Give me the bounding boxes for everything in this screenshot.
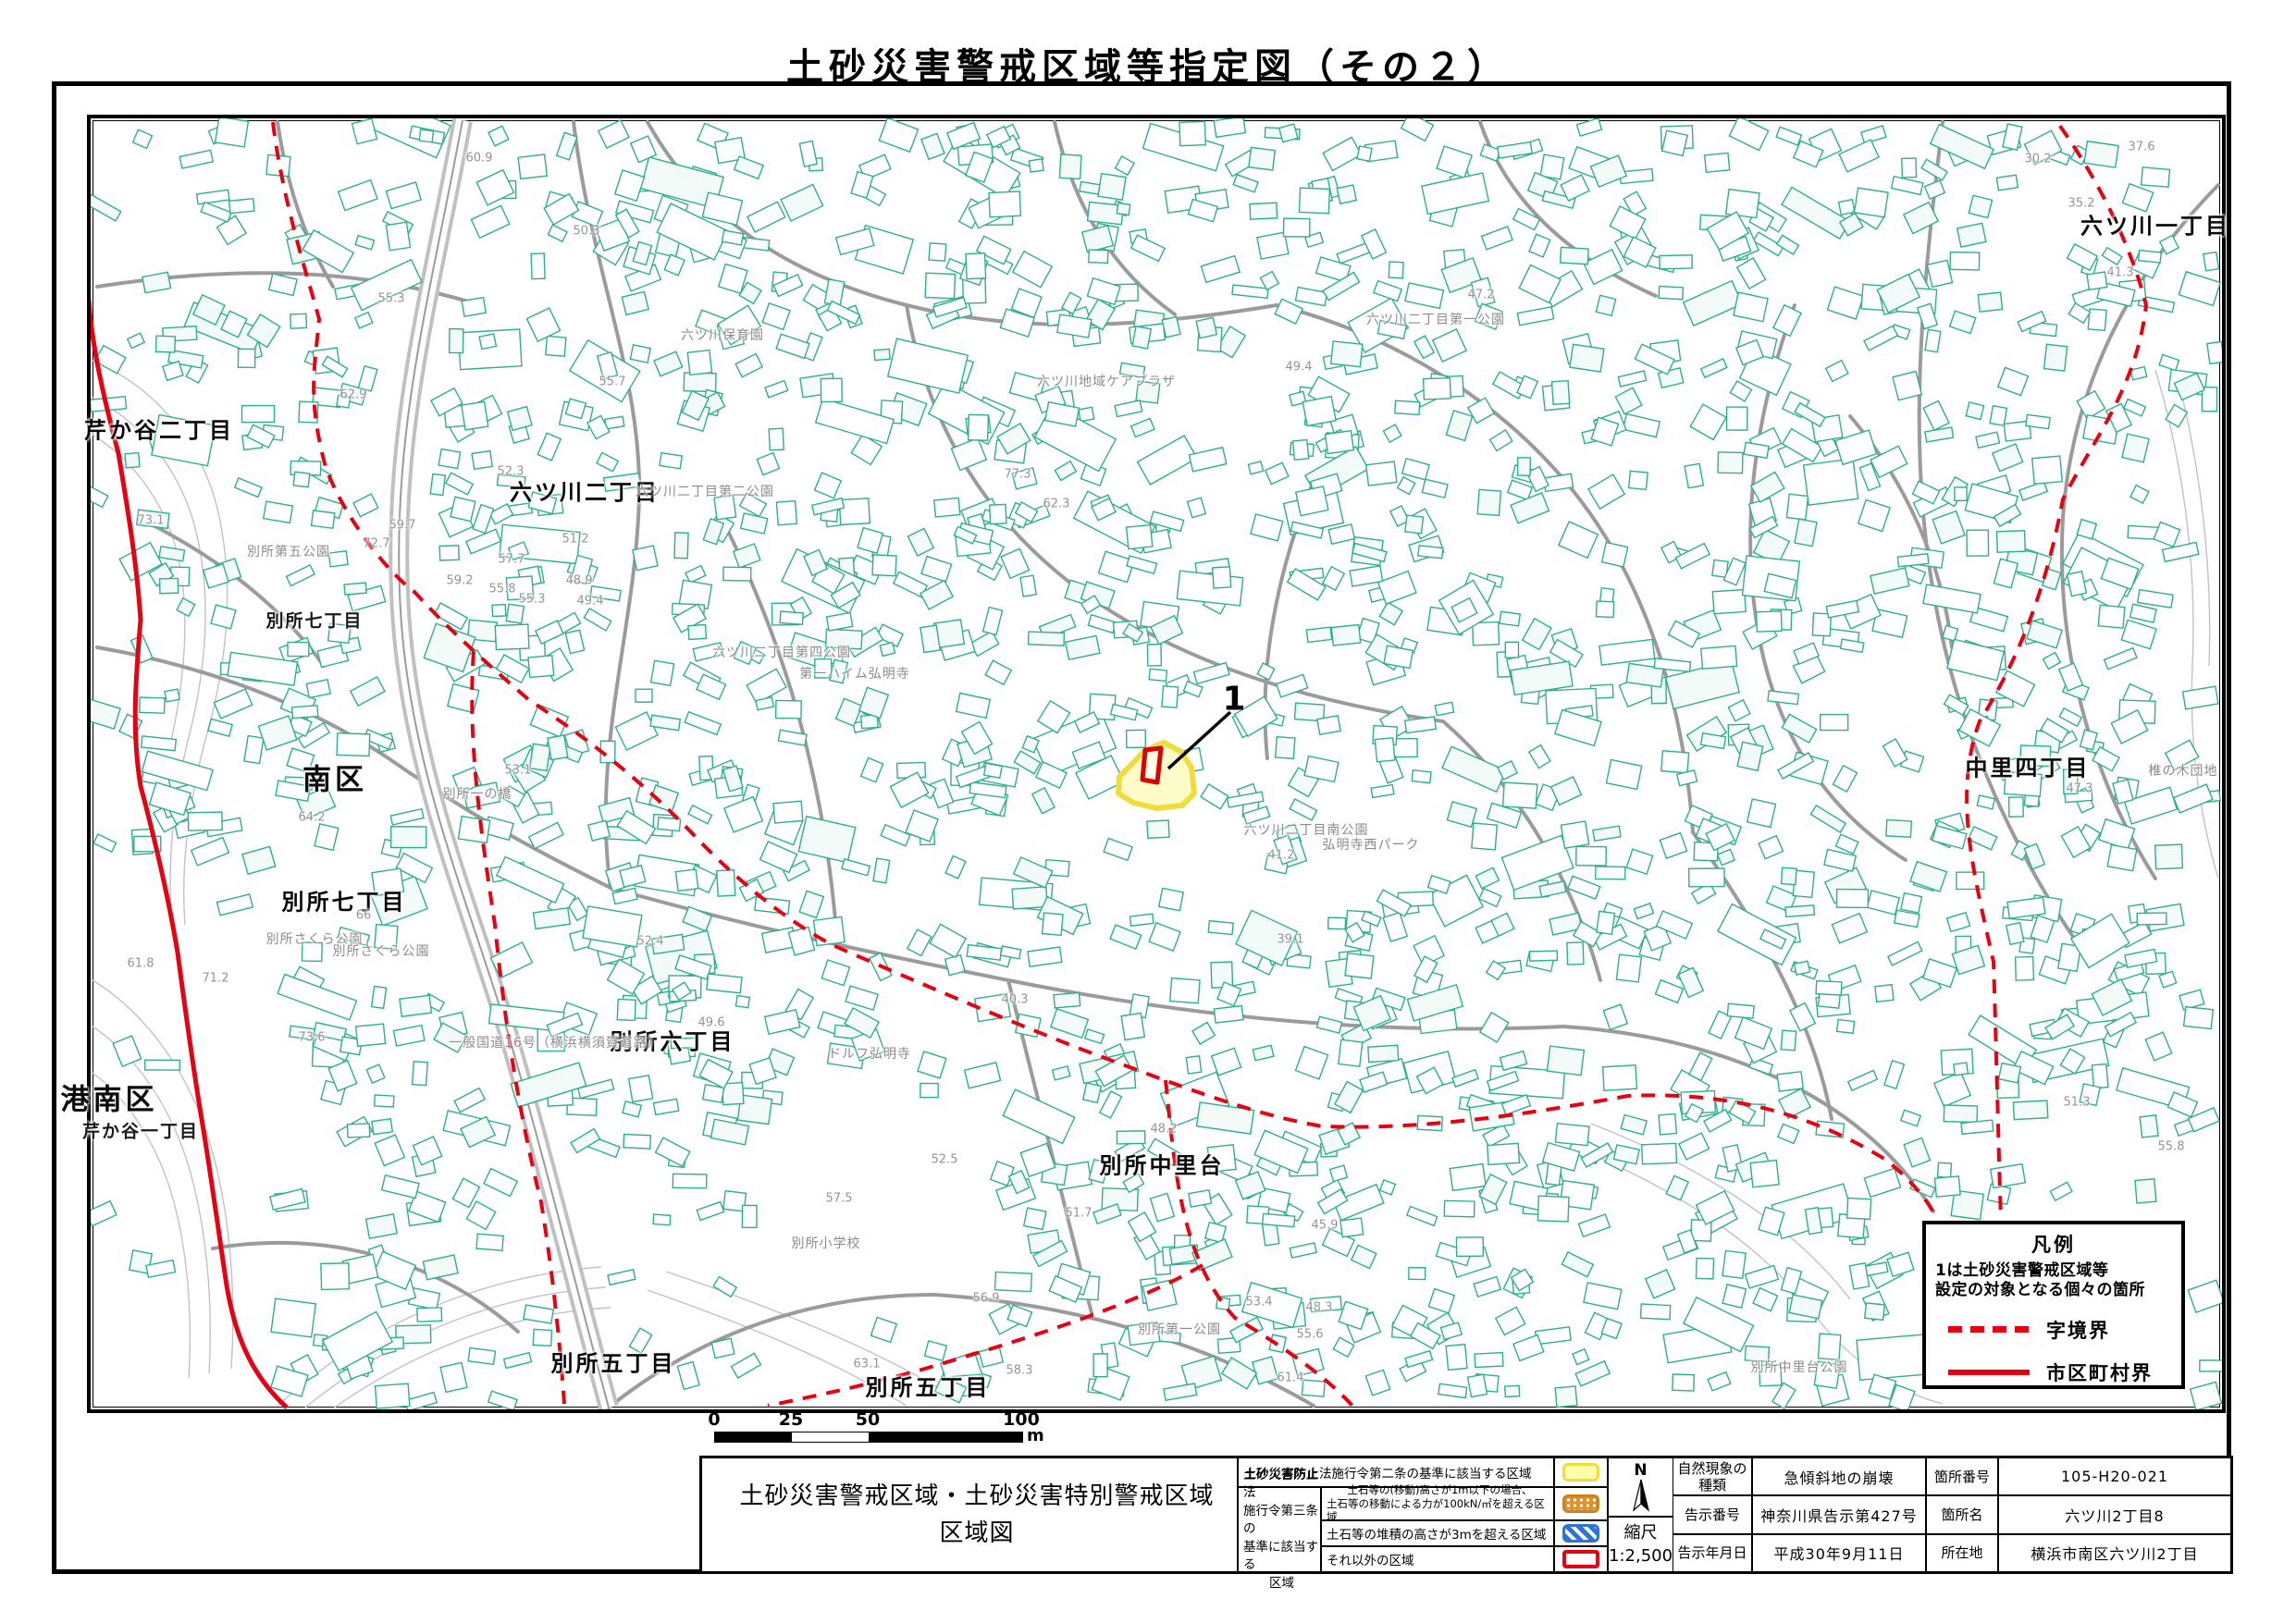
field-value: 神奈川県告示第427号: [1753, 1496, 1925, 1532]
scale-segment-black: [715, 1432, 792, 1442]
criteria-move-height-line1: 土石等の(移動)高さが1m以下の場合、: [1348, 1483, 1533, 1497]
zone-orange-dots-swatch: [1562, 1494, 1599, 1513]
field-value: 急傾斜地の崩壊: [1753, 1458, 1925, 1494]
zone-red-outline-swatch: [1562, 1550, 1599, 1568]
aza-boundary-label: 字境界: [2046, 1316, 2110, 1344]
scale-bar-unit: m: [1027, 1426, 1044, 1445]
criteria-article3-label-line: 基準に該当する: [1243, 1539, 1320, 1575]
criteria-article3-label-line: 施行令第三条の: [1243, 1503, 1320, 1539]
map-sheet-title-cell: 土砂災害警戒区域・土砂災害特別警戒区域 区域図: [702, 1458, 1237, 1571]
criteria-article3-label-line: 区域: [1269, 1575, 1294, 1593]
legend-note-line1: 1は土砂災害警戒区域等: [1935, 1261, 2172, 1281]
base-map: [91, 118, 2222, 1409]
field-label: 告示番号: [1673, 1496, 1751, 1532]
compass-scale-group: N 縮尺 1:2,500: [1609, 1458, 1672, 1571]
scale-bar: 02550100 m: [712, 1409, 1045, 1452]
legend-box: 凡例 1は土砂災害警戒区域等 設定の対象となる個々の箇所 字境界 市区町村界: [1922, 1221, 2185, 1389]
field-label: 所在地: [1927, 1535, 1997, 1571]
zone-yellow-swatch-cell: [1555, 1458, 1607, 1486]
map-sheet: 土砂災害警戒区域等指定図（その２）: [0, 0, 2296, 1623]
map-area: [87, 115, 2226, 1413]
scale-segment-white: [792, 1432, 869, 1442]
criteria-article3-group: 土砂災害防止法施行令第三条の基準に該当する区域 土石等の(移動)高さが1m以下の…: [1239, 1488, 1553, 1571]
legend-row-municipal: 市区町村界: [1935, 1359, 2172, 1386]
municipal-boundary-label: 市区町村界: [2046, 1359, 2153, 1386]
field-label: 箇所名: [1927, 1496, 1997, 1532]
zone-red-outline-swatch-cell: [1555, 1547, 1607, 1571]
criteria-article3-label-line: 土砂災害防止法: [1243, 1467, 1320, 1503]
designation-fields-group: 自然現象の種類急傾斜地の崩壊箇所番号105-H20-021告示番号神奈川県告示第…: [1673, 1458, 2230, 1571]
zone-blue-stripes-swatch: [1562, 1524, 1599, 1543]
map-sheet-title-line1: 土砂災害警戒区域・土砂災害特別警戒区域: [739, 1478, 1214, 1515]
legend-note-line2: 設定の対象となる個々の箇所: [1935, 1281, 2172, 1300]
scale-segment-black: [869, 1432, 1022, 1442]
zone-blue-stripes-swatch-cell: [1555, 1521, 1607, 1545]
zone-yellow-swatch: [1562, 1463, 1599, 1482]
field-label: 告示年月日: [1673, 1535, 1751, 1571]
criteria-other-cell: それ以外の区域: [1322, 1547, 1553, 1571]
legend-heading: 凡例: [1935, 1230, 2172, 1258]
field-label: 箇所番号: [1927, 1458, 1997, 1494]
scale-tick-label: 50: [856, 1409, 880, 1430]
zone-orange-dots-swatch-cell: [1555, 1488, 1607, 1519]
north-arrow-icon: [1631, 1479, 1651, 1512]
info-table: 土砂災害警戒区域・土砂災害特別警戒区域 区域図 土砂災害防止法施行令第二条の基準…: [699, 1456, 2233, 1574]
special-warning-zone-red: [1142, 748, 1161, 782]
dashed-red-line-icon: [1948, 1326, 2030, 1333]
compass-n-label: N: [1634, 1463, 1647, 1479]
field-value: 平成30年9月11日: [1753, 1535, 1925, 1571]
scale-value: 1:2,500: [1609, 1544, 1673, 1568]
criteria-move-height-cell: 土石等の(移動)高さが1m以下の場合、 土石等の移動による力が100kN/㎡を超…: [1322, 1488, 1553, 1519]
map-sheet-title-line2: 区域図: [939, 1515, 1014, 1552]
field-value: 横浜市南区六ツ川2丁目: [1999, 1535, 2230, 1571]
scale-tick-label: 0: [708, 1409, 720, 1430]
field-value: 六ツ川2丁目8: [1999, 1496, 2230, 1532]
criteria-move-height-line2: 土石等の移動による力が100kN/㎡を超える区域: [1327, 1497, 1553, 1525]
criteria-article3-label-cell: 土砂災害防止法施行令第三条の基準に該当する区域: [1239, 1488, 1320, 1571]
field-value: 105-H20-021: [1999, 1458, 2230, 1494]
scale-bar-segments: [714, 1432, 1023, 1443]
scale-cell: 縮尺 1:2,500: [1609, 1518, 1673, 1571]
compass-cell: N: [1609, 1458, 1673, 1516]
legend-row-aza: 字境界: [1935, 1316, 2172, 1344]
scale-tick-label: 25: [779, 1409, 803, 1430]
field-label: 自然現象の種類: [1673, 1458, 1751, 1494]
scale-label: 縮尺: [1624, 1521, 1658, 1544]
solid-red-line-icon: [1948, 1370, 2030, 1375]
scale-bar-ticks: 02550100: [712, 1409, 1045, 1430]
criteria-deposit-height-cell: 土石等の堆積の高さが3mを超える区域: [1322, 1521, 1553, 1545]
